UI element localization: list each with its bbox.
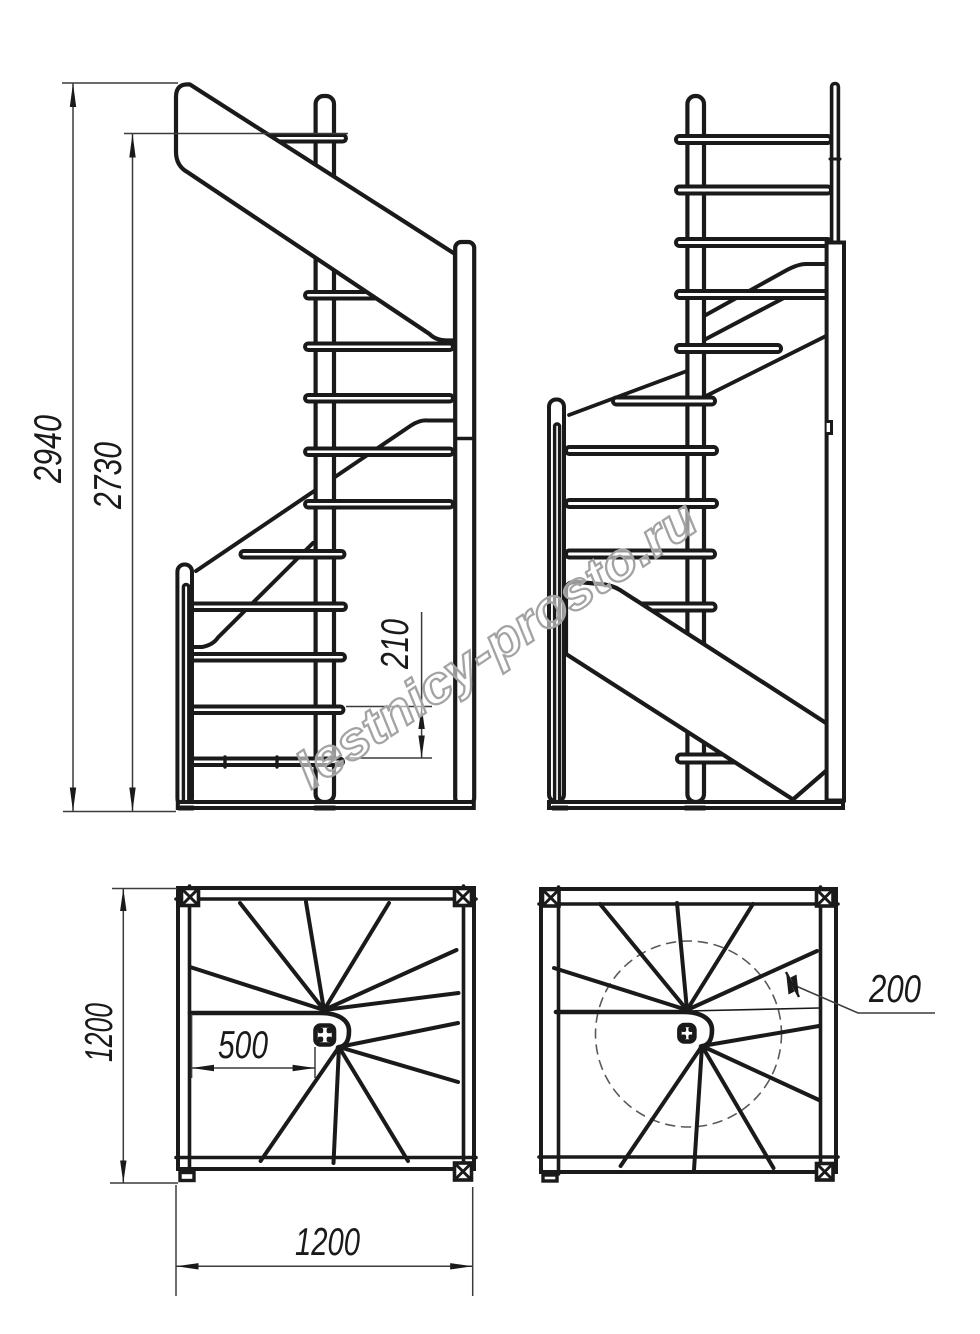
svg-text:1200: 1200	[295, 1221, 360, 1264]
svg-text:1200: 1200	[78, 1003, 121, 1062]
svg-text:2730: 2730	[87, 442, 130, 510]
svg-text:500: 500	[218, 1024, 268, 1067]
svg-text:2940: 2940	[27, 415, 70, 484]
svg-text:200: 200	[868, 968, 921, 1011]
svg-text:210: 210	[374, 619, 417, 670]
